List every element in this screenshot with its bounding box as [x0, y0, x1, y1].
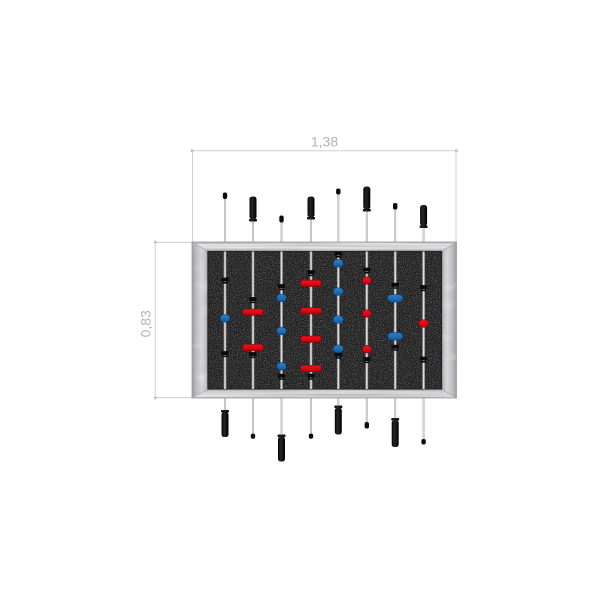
svg-text:0,83: 0,83: [138, 310, 154, 337]
svg-text:1,38: 1,38: [311, 134, 338, 150]
